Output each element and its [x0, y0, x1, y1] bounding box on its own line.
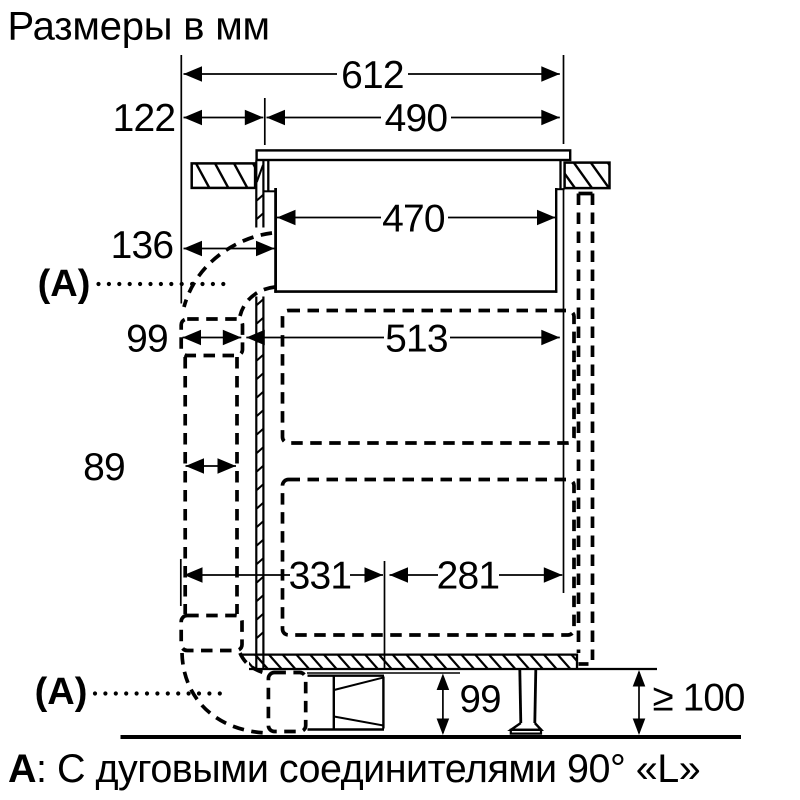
svg-text:490: 490 — [385, 97, 448, 140]
svg-text:А: С дуговыми соединителями 90: А: С дуговыми соединителями 90° «L» — [8, 747, 700, 791]
svg-text:99: 99 — [460, 678, 501, 721]
svg-text:470: 470 — [382, 198, 445, 241]
svg-text:136: 136 — [111, 224, 174, 267]
svg-text:Размеры в мм: Размеры в мм — [8, 5, 270, 49]
svg-text:122: 122 — [113, 97, 176, 140]
svg-text:(A): (A) — [35, 671, 88, 713]
svg-text:(A): (A) — [38, 263, 91, 305]
svg-text:≥ 100: ≥ 100 — [653, 677, 745, 720]
svg-text:612: 612 — [341, 54, 404, 97]
svg-text:513: 513 — [385, 318, 448, 361]
svg-text:331: 331 — [289, 555, 352, 598]
svg-text:89: 89 — [83, 446, 125, 489]
svg-text:99: 99 — [126, 318, 168, 361]
svg-text:281: 281 — [437, 555, 500, 598]
